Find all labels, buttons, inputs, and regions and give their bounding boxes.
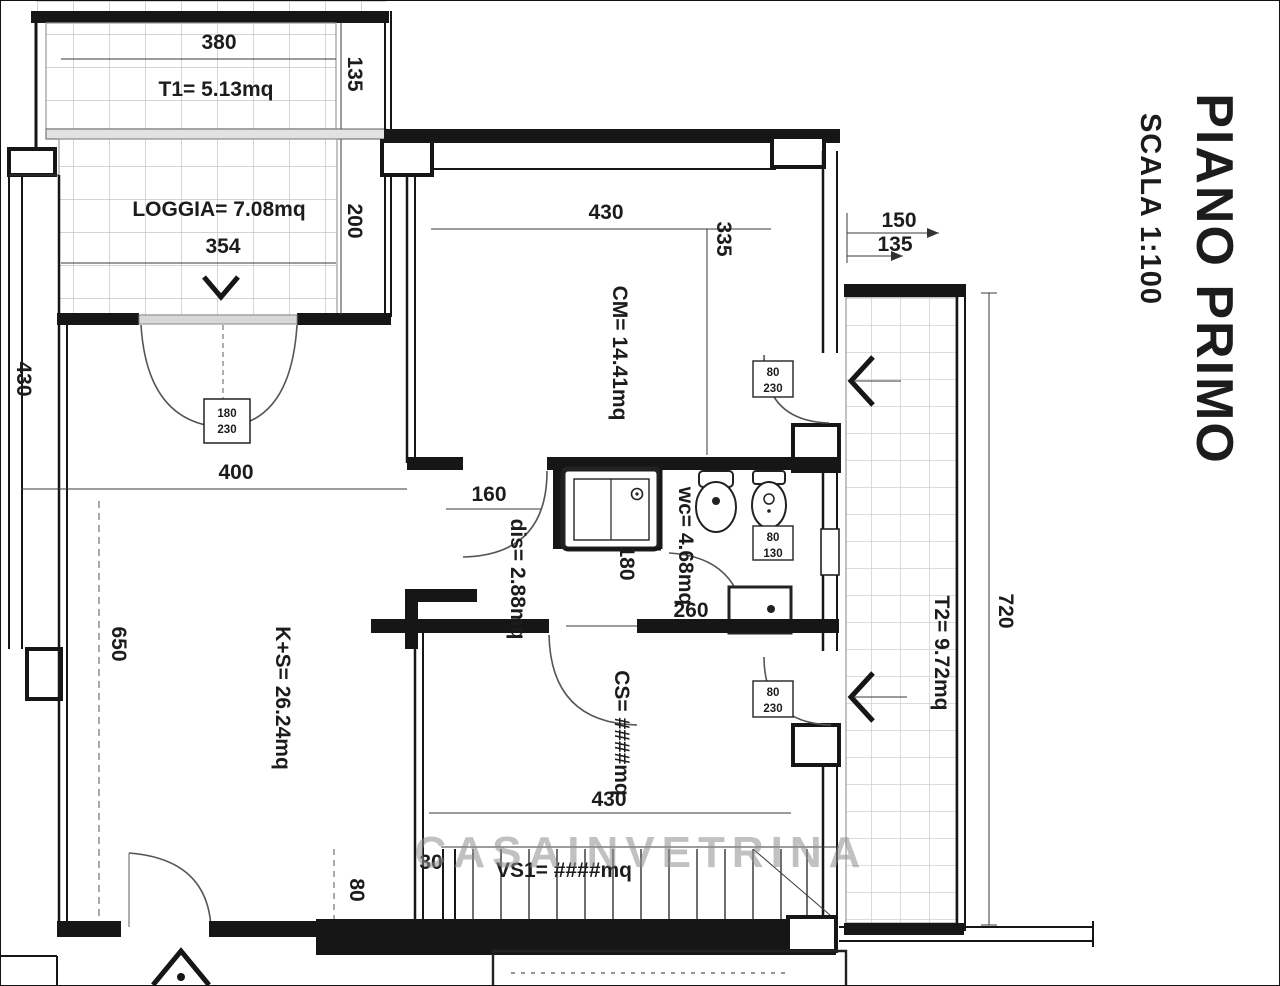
left-wall-block bbox=[1, 149, 61, 986]
wall bbox=[844, 923, 964, 935]
room-label-cm: CM= 14.41mq bbox=[608, 286, 631, 421]
wall bbox=[407, 457, 463, 470]
dim-260: 260 bbox=[673, 599, 708, 622]
opening-label-box bbox=[204, 399, 250, 443]
pillar bbox=[788, 917, 836, 951]
room-label-t2: T2= 9.72mq bbox=[930, 596, 953, 711]
floor-plan-page: 380 T1= 5.13mq 135 LOGGIA= 7.08mq 354 20… bbox=[0, 0, 1280, 986]
right-wall bbox=[793, 151, 839, 923]
door-sill bbox=[139, 315, 297, 324]
wall bbox=[316, 919, 836, 955]
wall bbox=[637, 619, 839, 633]
pillar bbox=[27, 649, 61, 699]
page-title: PIANO PRIMO bbox=[1185, 93, 1243, 465]
opening-label: 230 bbox=[763, 383, 782, 395]
room-label-cs: CS= ####mq bbox=[610, 670, 633, 796]
opening-label: 230 bbox=[763, 703, 782, 715]
room-label-dis: dis= 2.88mq bbox=[506, 519, 529, 640]
wall bbox=[297, 313, 391, 325]
opening-label: 130 bbox=[763, 548, 782, 560]
room-label-ks: K+S= 26.24mq bbox=[271, 626, 294, 770]
dim-430-left: 430 bbox=[12, 361, 35, 396]
window bbox=[821, 529, 839, 575]
dim-180: 180 bbox=[615, 545, 638, 580]
opening-label: 80 bbox=[767, 532, 780, 544]
dim-135-top: 135 bbox=[343, 56, 366, 91]
dim-650: 650 bbox=[107, 626, 130, 661]
opening-label: 80 bbox=[767, 367, 780, 379]
dim-160: 160 bbox=[471, 483, 506, 506]
dim-430-cs: 430 bbox=[591, 788, 626, 811]
room-label-wc: wc= 4.68mq bbox=[674, 486, 697, 605]
wall bbox=[209, 921, 316, 937]
room-label-t1: T1= 5.13mq bbox=[159, 78, 274, 101]
wall bbox=[31, 11, 389, 23]
pillar bbox=[382, 141, 432, 175]
dim-80: 80 bbox=[345, 878, 368, 901]
t2-terrace bbox=[844, 213, 997, 935]
shower-icon bbox=[563, 469, 659, 549]
opening-label: 80 bbox=[767, 687, 780, 699]
dim-150: 150 bbox=[881, 209, 916, 232]
wall bbox=[844, 284, 966, 297]
opening-label: 230 bbox=[217, 424, 236, 436]
watermark: CASAINVETRINA bbox=[415, 828, 868, 877]
dim-335: 335 bbox=[712, 221, 735, 256]
dim-200: 200 bbox=[343, 203, 366, 238]
dim-720: 720 bbox=[994, 593, 1017, 628]
pillar bbox=[9, 149, 55, 175]
bidet-icon bbox=[752, 471, 786, 528]
pillar bbox=[772, 137, 824, 167]
opening-label: 180 bbox=[217, 408, 236, 420]
tile-area-loggia bbox=[59, 139, 337, 315]
dim-354: 354 bbox=[205, 235, 240, 258]
wall-divider bbox=[46, 129, 386, 139]
dimension-arrow bbox=[927, 228, 939, 238]
dim-430-cm: 430 bbox=[588, 201, 623, 224]
pillar bbox=[793, 725, 839, 765]
arrow-up-icon bbox=[153, 951, 209, 985]
door-arc bbox=[129, 853, 211, 927]
dim-380: 380 bbox=[201, 31, 236, 54]
toilet-icon bbox=[696, 471, 736, 532]
tile-area-t1 bbox=[46, 23, 336, 129]
dim-400: 400 bbox=[218, 461, 253, 484]
room-label-loggia: LOGGIA= 7.08mq bbox=[132, 198, 305, 221]
tile-area bbox=[36, 1, 386, 11]
scale-label: SCALA 1:100 bbox=[1134, 113, 1166, 305]
lower-floor-outline bbox=[493, 951, 846, 986]
wall bbox=[57, 921, 121, 937]
dim-135-right: 135 bbox=[877, 233, 912, 256]
wall bbox=[57, 313, 139, 325]
floor-plan-drawing: 380 T1= 5.13mq 135 LOGGIA= 7.08mq 354 20… bbox=[1, 1, 1280, 986]
